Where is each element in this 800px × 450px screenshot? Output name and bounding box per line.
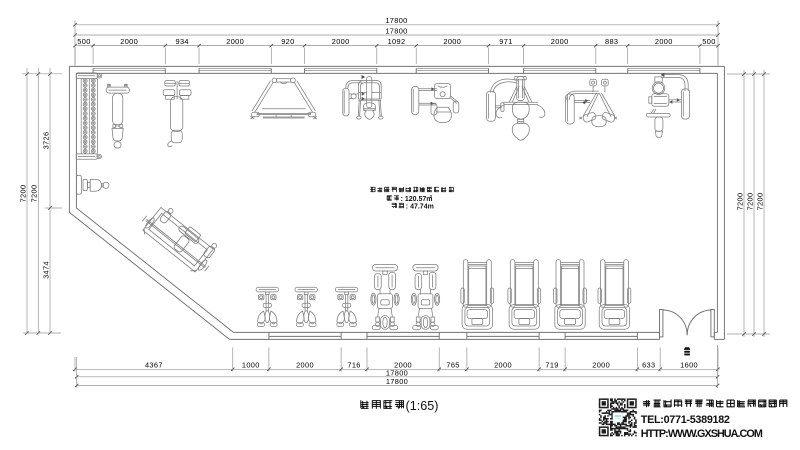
svg-text:920: 920 — [281, 37, 294, 46]
svg-text:TEL:0771-5389182: TEL:0771-5389182 — [641, 414, 730, 426]
svg-text:17800: 17800 — [386, 377, 408, 386]
svg-text:2000: 2000 — [592, 361, 610, 370]
svg-text:1600: 1600 — [680, 361, 698, 370]
svg-text:7200: 7200 — [755, 193, 764, 211]
svg-text:17800: 17800 — [385, 26, 407, 35]
svg-text:1092: 1092 — [388, 37, 406, 46]
svg-text:7200: 7200 — [18, 185, 27, 203]
svg-text:883: 883 — [605, 37, 618, 46]
svg-text:2000: 2000 — [296, 361, 314, 370]
svg-text:2000: 2000 — [120, 37, 138, 46]
svg-text:765: 765 — [446, 361, 459, 370]
svg-text:(1:65): (1:65) — [406, 399, 439, 413]
svg-text:716: 716 — [347, 361, 360, 370]
svg-text:7200: 7200 — [735, 193, 744, 211]
svg-text:3474: 3474 — [41, 261, 50, 279]
svg-text:719: 719 — [545, 361, 558, 370]
svg-text:500: 500 — [77, 37, 90, 46]
svg-text:: 47.74m: : 47.74m — [406, 203, 434, 210]
svg-text:2000: 2000 — [655, 37, 673, 46]
svg-text:2: 2 — [430, 194, 433, 199]
svg-text:: 120.57m: : 120.57m — [401, 196, 433, 203]
svg-text:7200: 7200 — [30, 185, 39, 203]
svg-text:17800: 17800 — [385, 16, 407, 25]
svg-text:17800: 17800 — [386, 368, 408, 377]
svg-text:934: 934 — [176, 37, 189, 46]
svg-text:4367: 4367 — [145, 361, 163, 370]
svg-text:2000: 2000 — [494, 361, 512, 370]
svg-text:2000: 2000 — [551, 37, 569, 46]
svg-text:HTTP:WWW.GXSHUA.COM: HTTP:WWW.GXSHUA.COM — [641, 428, 763, 440]
svg-text:971: 971 — [499, 37, 512, 46]
svg-text:1000: 1000 — [242, 361, 260, 370]
svg-text:2000: 2000 — [443, 37, 461, 46]
svg-text:3726: 3726 — [41, 132, 50, 150]
svg-text:2000: 2000 — [332, 37, 350, 46]
svg-text:500: 500 — [702, 37, 715, 46]
svg-text:2000: 2000 — [226, 37, 244, 46]
svg-text:7200: 7200 — [745, 193, 754, 211]
svg-text:633: 633 — [642, 361, 655, 370]
